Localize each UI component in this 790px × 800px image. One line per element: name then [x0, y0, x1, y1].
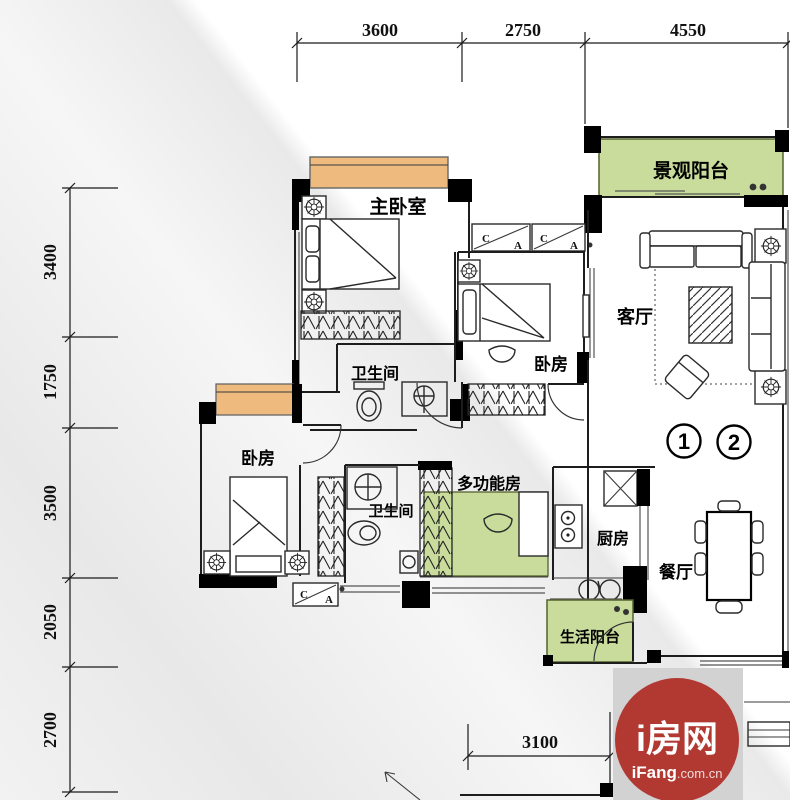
single-bed	[458, 284, 550, 341]
room-dining: 餐厅	[647, 501, 789, 668]
wall-segment	[418, 461, 452, 470]
dim-top-3: 4550	[670, 20, 706, 40]
room-label-bathroom-main: 卫生间	[351, 364, 399, 383]
door-handle-icon	[614, 606, 620, 612]
dimension-top: 3600 2750 4550	[292, 20, 790, 128]
leader-arrow	[385, 772, 420, 800]
dimension-left: 3400 1750 3500 2050 2700	[40, 183, 118, 797]
wall-pillar	[782, 651, 789, 668]
sofa-three-seat	[640, 231, 752, 268]
room-label-kitchen: 厨房	[597, 529, 629, 548]
ac-mark-a: A	[325, 594, 333, 606]
wall-pillar	[600, 783, 614, 797]
marker-number-2: 2	[728, 430, 740, 455]
toilet	[348, 521, 380, 545]
wardrobe	[468, 384, 545, 415]
window	[432, 588, 545, 593]
wall-pillar	[448, 179, 472, 202]
room-label-master-bedroom: 主卧室	[369, 195, 426, 218]
wall-pillar	[450, 399, 470, 421]
dim-bottom-1: 3100	[522, 732, 558, 752]
window-sill	[748, 722, 790, 746]
svg-text:iFang.com.cn: iFang.com.cn	[632, 763, 723, 782]
wardrobe	[301, 311, 400, 339]
room-label-bedroom-mid: 卧房	[534, 354, 568, 374]
dining-table	[695, 501, 763, 613]
ac-mark-c: C	[300, 589, 308, 601]
ac-mark-c: C	[540, 233, 548, 245]
ac-mark-c: C	[482, 233, 490, 245]
unit-markers: 1 2	[668, 425, 751, 459]
ac-mark-a: A	[514, 240, 522, 252]
window	[590, 268, 594, 358]
site-logo: i房网 iFang.com.cn	[613, 668, 743, 800]
wall-pillar	[292, 384, 302, 423]
chair	[489, 346, 515, 362]
room-label-dining: 餐厅	[659, 562, 693, 582]
logo-site-bold: iFang	[632, 763, 677, 782]
wall-segment	[292, 202, 299, 230]
room-label-living-room: 客厅	[617, 306, 653, 327]
ac-platform: C A	[293, 583, 345, 606]
dim-left-5: 2700	[40, 712, 60, 748]
door-handle-icon	[750, 184, 757, 191]
floor-plan-drawing: 3600 2750 4550 3400 1750 3500 2050 2700 …	[0, 0, 790, 800]
sofa-two-seat	[749, 262, 785, 371]
window	[340, 586, 400, 592]
wall-pillar	[199, 402, 216, 424]
wall-pillar	[637, 469, 650, 506]
wardrobe	[420, 468, 452, 576]
wall-pillar	[543, 655, 553, 666]
door-handle-icon	[623, 609, 629, 615]
logo-site-rest: .com.cn	[677, 766, 723, 781]
dim-left-2: 1750	[40, 364, 60, 400]
wall-pillar	[402, 581, 430, 608]
room-multifunction: 多功能房	[402, 461, 548, 608]
door-arc	[548, 384, 584, 420]
logo-brand: i房网	[636, 718, 718, 759]
stove	[555, 505, 582, 548]
dim-left-3: 3500	[40, 485, 60, 521]
coffee-table	[689, 287, 732, 343]
room-label-bathroom-second: 卫生间	[368, 502, 413, 520]
dim-left-1: 3400	[40, 244, 60, 280]
wall-segment	[744, 195, 788, 207]
dim-top-1: 3600	[362, 20, 398, 40]
wall-pillar	[584, 126, 601, 153]
single-bed	[230, 477, 287, 576]
dimension-bottom: 3100	[463, 712, 615, 788]
tv-cabinet	[583, 295, 589, 337]
floor-plan-page: 3600 2750 4550 3400 1750 3500 2050 2700 …	[0, 0, 790, 800]
room-label-multifunction: 多功能房	[457, 474, 521, 493]
door-handle-icon	[760, 184, 767, 191]
room-view-balcony: 景观阳台	[584, 126, 789, 233]
wardrobe	[318, 477, 344, 576]
room-label-view-balcony: 景观阳台	[653, 159, 729, 182]
room-service-balcony: 生活阳台	[543, 600, 647, 666]
room-kitchen: 厨房	[550, 467, 655, 613]
bay-window	[216, 384, 293, 415]
ac-mark-a: A	[570, 240, 578, 252]
dim-top-2: 2750	[505, 20, 541, 40]
armchair	[664, 354, 710, 401]
room-master-bedroom: 主卧室	[292, 157, 472, 392]
window	[700, 661, 786, 665]
wall-pillar	[775, 130, 789, 152]
double-bed	[302, 219, 399, 289]
wall-pillar	[584, 195, 602, 233]
toilet	[354, 382, 384, 421]
bay-window	[310, 157, 448, 188]
ac-platform: C A C A	[472, 224, 593, 252]
room-bedroom-mid: 卧房	[450, 252, 589, 421]
washbasin	[402, 382, 447, 416]
dim-left-4: 2050	[40, 604, 60, 640]
room-label-bedroom-left: 卧房	[241, 448, 275, 468]
washing-machine	[400, 551, 418, 573]
wall-pillar	[647, 650, 661, 663]
room-label-service-balcony: 生活阳台	[560, 628, 620, 646]
desk	[519, 492, 548, 556]
marker-number-1: 1	[678, 429, 690, 454]
room-bathroom-second: 卫生间	[340, 465, 420, 592]
